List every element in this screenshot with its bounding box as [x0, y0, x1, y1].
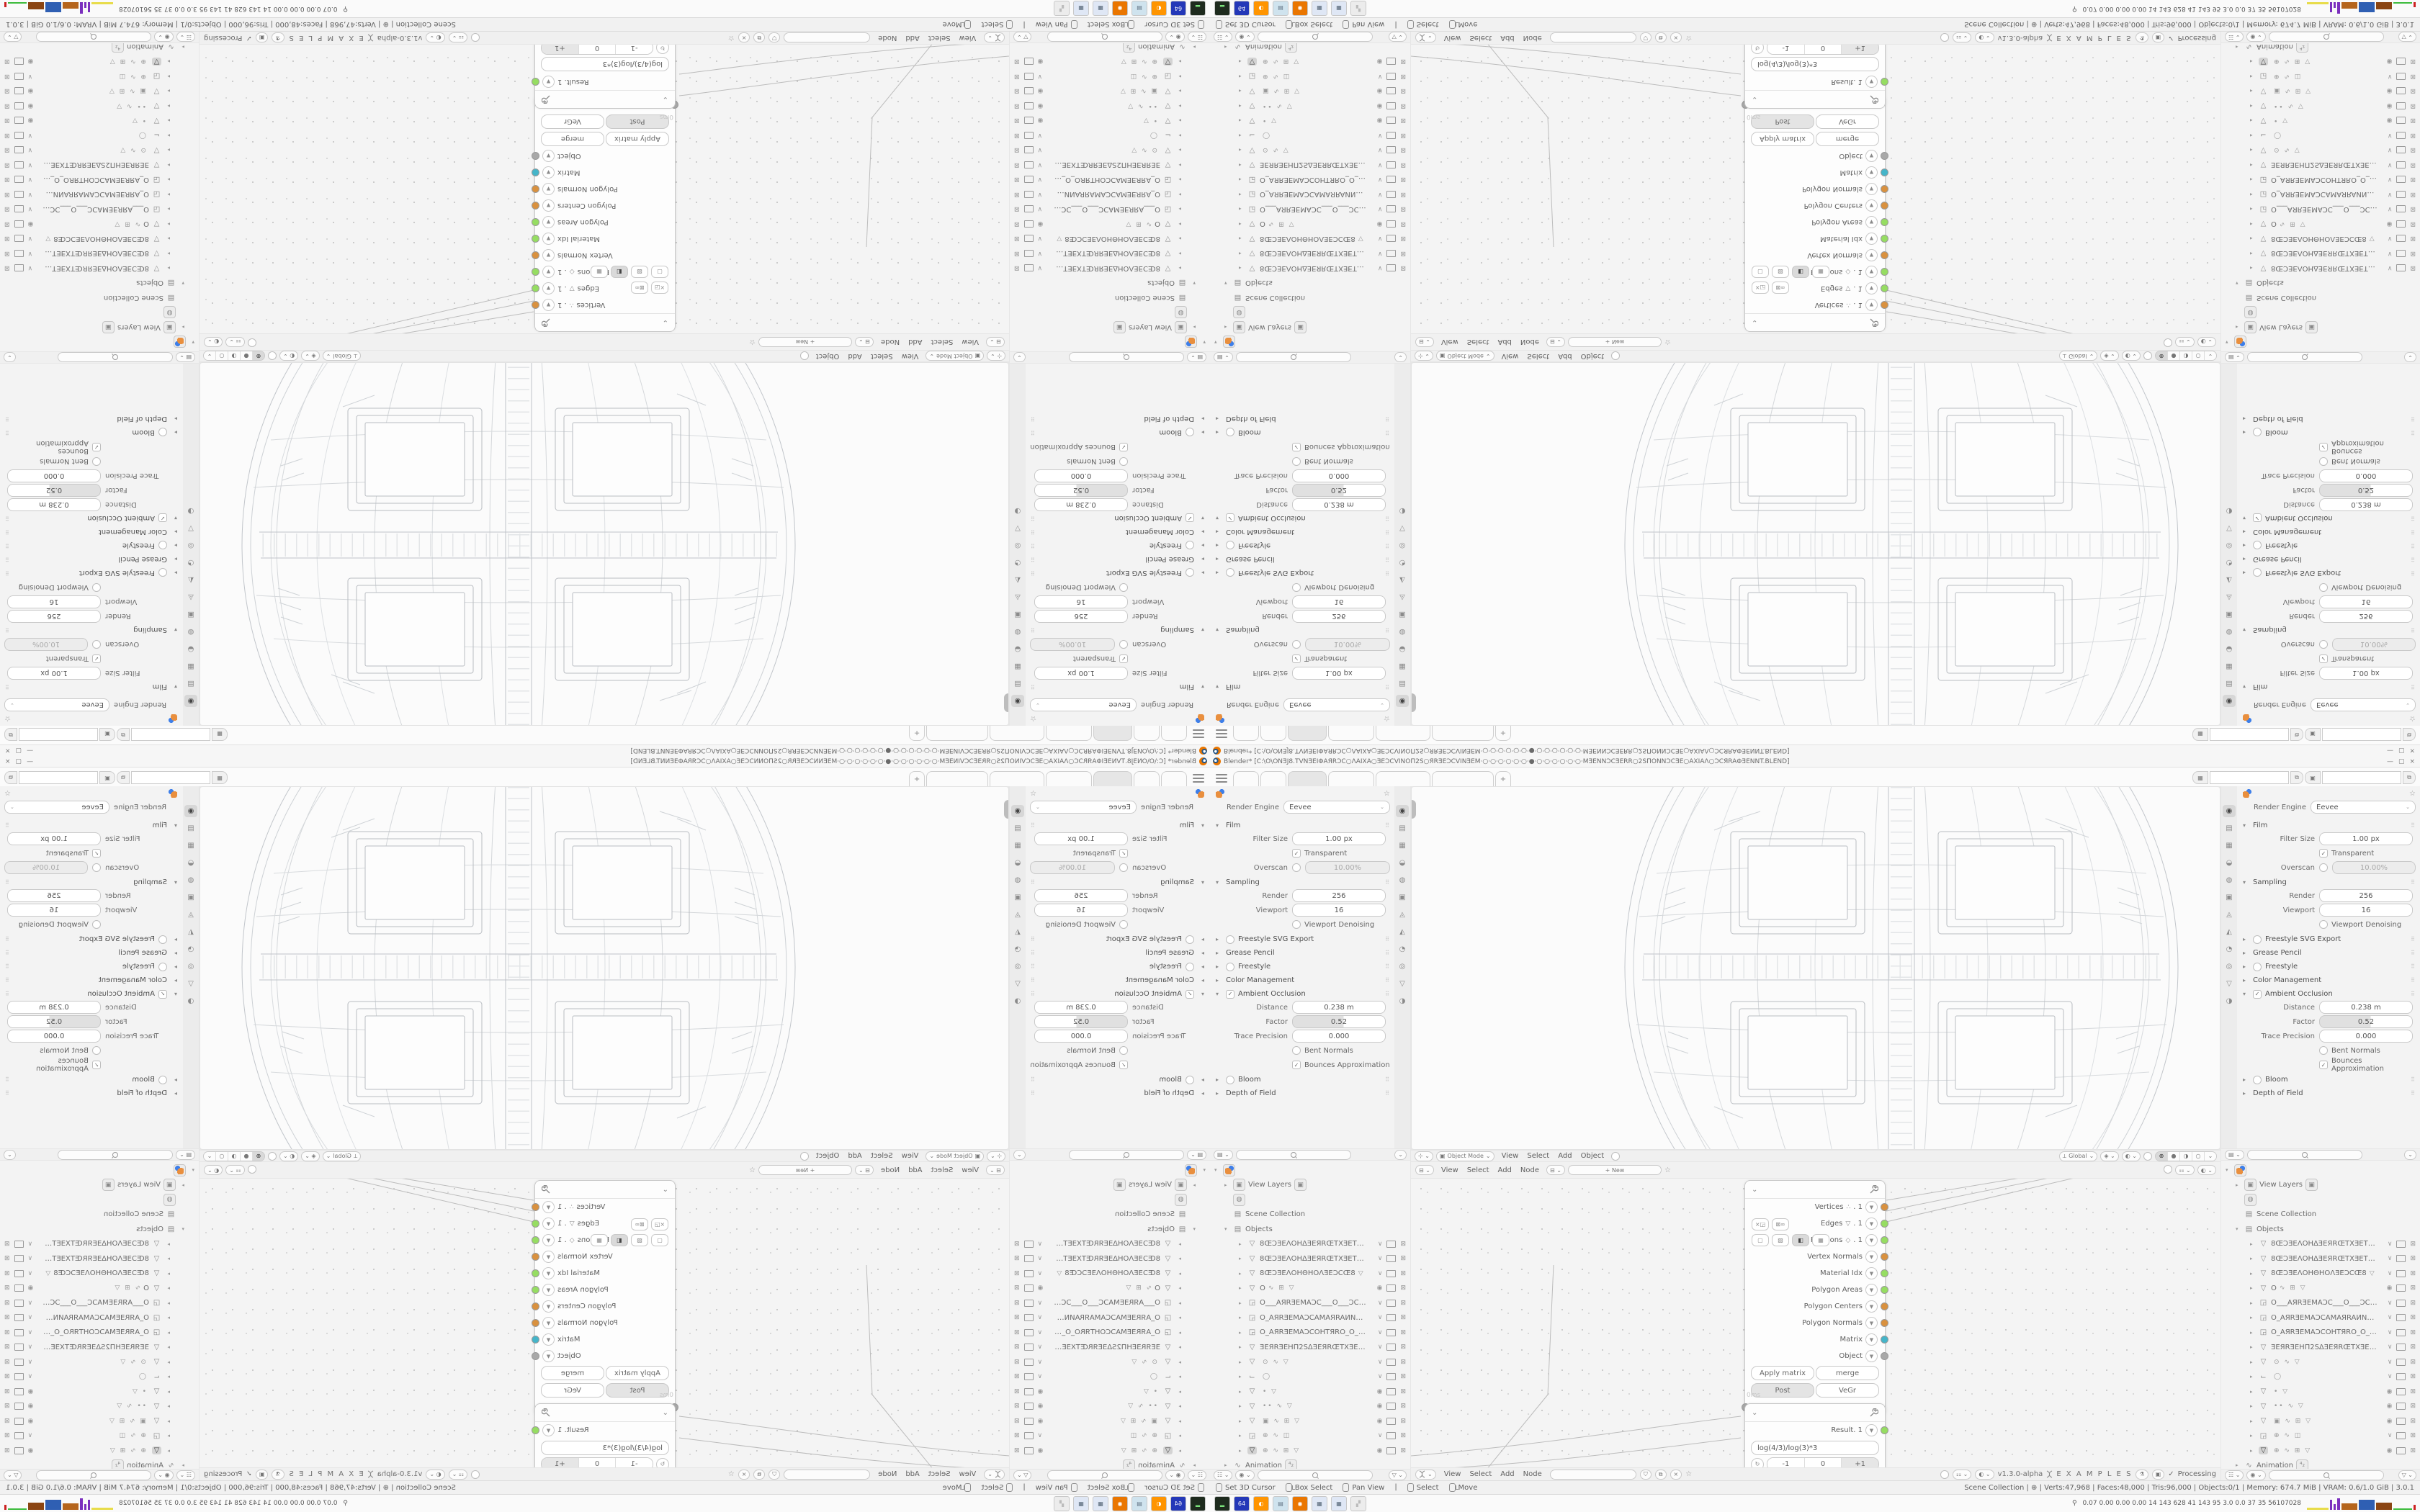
- outliner-object-row[interactable]: ▸◲O_AЯRƎEMAƆCAMAЯRAИNAΠ_O∨⊠: [1, 187, 194, 202]
- calculator-2-app-icon[interactable]: ▦: [1073, 1, 1089, 17]
- output-dropdown[interactable]: ▼: [542, 1333, 555, 1346]
- outliner-filter-icon[interactable]: ◉ ⌄: [1165, 1470, 1184, 1480]
- outliner-object-row[interactable]: ▸▽8ŒƆƎEΛOHΘHOΛƎEƆCŒ8▽∨⊠: [2226, 1266, 2419, 1282]
- checkbox[interactable]: [2319, 457, 2328, 466]
- value-field[interactable]: 1.00 px: [2319, 832, 2413, 845]
- subprogram-icon[interactable]: ⚗: [2136, 1470, 2148, 1480]
- disable-viewport-icon[interactable]: [14, 1359, 24, 1366]
- stepper-button-0[interactable]: 0: [578, 45, 616, 54]
- output-socket[interactable]: [1881, 251, 1888, 259]
- shading-dropdown[interactable]: ⌄: [204, 352, 215, 361]
- disable-viewport-icon[interactable]: [14, 220, 24, 228]
- workspace-tab-2[interactable]: [1260, 771, 1286, 786]
- viewport-menu-select[interactable]: Select: [1523, 352, 1554, 360]
- value-field[interactable]: 0.238 m: [7, 498, 101, 511]
- disable-render-icon[interactable]: ⊠: [1400, 102, 1406, 109]
- disable-viewport-icon[interactable]: [14, 1300, 24, 1307]
- outliner-object-row[interactable]: ▸▽8ŒƆƎEΛOHΔƎEЯRŒTXƎETΘTƎEXTŒ8∨⊠: [1, 246, 194, 261]
- expand-icon[interactable]: ▸: [1190, 44, 1196, 50]
- disable-render-icon[interactable]: ⊠: [4, 1329, 10, 1336]
- outliner-filter-icon[interactable]: ◉ ⌄: [1235, 32, 1254, 42]
- expand-icon[interactable]: ▸: [179, 1182, 184, 1188]
- view-layer-field[interactable]: [2322, 728, 2401, 741]
- hide-toggle-icon[interactable]: ∨: [2388, 1241, 2393, 1248]
- expand-icon[interactable]: ▸: [1216, 528, 1222, 535]
- value-field[interactable]: 10.00%: [1305, 638, 1390, 651]
- hide-toggle-icon[interactable]: ∨: [2388, 1432, 2393, 1439]
- disable-render-icon[interactable]: ⊠: [1014, 1255, 1020, 1262]
- section-header[interactable]: ▸Freestyle SVG Export⠿: [2243, 567, 2416, 579]
- disable-viewport-icon[interactable]: [2396, 1344, 2406, 1351]
- disable-render-icon[interactable]: ⊠: [2410, 132, 2416, 139]
- disable-viewport-icon[interactable]: [1386, 1403, 1396, 1410]
- outliner-object-row[interactable]: ▸▽•• ∿ ▽◉⊠: [1011, 99, 1206, 114]
- disable-viewport-icon[interactable]: [1024, 176, 1034, 183]
- outliner-row[interactable]: ▸∿Animation⁴₂: [1, 1458, 194, 1469]
- hide-toggle-icon[interactable]: ∨: [1378, 1255, 1383, 1262]
- expand-icon[interactable]: ▾: [1224, 280, 1230, 286]
- expand-icon[interactable]: ▸: [2250, 1448, 2256, 1454]
- floppy-64-app-icon[interactable]: 64: [1170, 1, 1186, 17]
- expand-icon[interactable]: ▸: [1175, 1300, 1181, 1306]
- filter-dropdown[interactable]: ▽ ⌄: [1013, 1470, 1031, 1480]
- render-properties-icon[interactable]: ◉: [2223, 695, 2236, 707]
- hide-toggle-icon[interactable]: ◉: [1038, 1403, 1044, 1410]
- viewer-icon[interactable]: ▣: [256, 1470, 269, 1480]
- mode-plain-toggle[interactable]: ▢: [1752, 1234, 1769, 1246]
- maximize-button[interactable]: ▢: [2398, 758, 2405, 765]
- outliner-search-input[interactable]: [1047, 32, 1162, 42]
- disable-viewport-icon[interactable]: [14, 1418, 24, 1425]
- disable-render-icon[interactable]: ⊠: [2410, 58, 2416, 65]
- output-properties-icon[interactable]: ▤: [184, 678, 197, 690]
- fake-user-shield-button[interactable]: ⛉: [1640, 1470, 1652, 1480]
- section-header[interactable]: ▸Color Management⠿: [1216, 974, 1390, 986]
- section-checkbox[interactable]: [158, 963, 167, 971]
- pin-icon[interactable]: ☆: [2409, 715, 2416, 723]
- hide-toggle-icon[interactable]: ∨: [28, 250, 33, 257]
- hide-toggle-icon[interactable]: ∨: [1378, 1329, 1383, 1336]
- section-checkbox[interactable]: [1226, 569, 1234, 577]
- disable-render-icon[interactable]: ⊠: [1014, 220, 1020, 228]
- render-properties-icon[interactable]: ◉: [1396, 695, 1409, 707]
- fake-user-shield-button[interactable]: ⛉: [768, 33, 780, 43]
- outliner-filter-icon[interactable]: ◉ ⌄: [2246, 1470, 2265, 1480]
- constraint-properties-icon[interactable]: ◎: [2223, 960, 2236, 973]
- disable-viewport-icon[interactable]: [1024, 87, 1034, 94]
- hide-toggle-icon[interactable]: ∨: [2388, 250, 2393, 257]
- outliner-object-row[interactable]: ▸◲O_AЯRƎEMAƆCAMAЯRAИNAΠ_O∨⊠: [2226, 187, 2419, 202]
- expand-icon[interactable]: ▸: [2243, 528, 2249, 535]
- link-toggle[interactable]: ⊠∞: [1772, 282, 1789, 294]
- hide-toggle-icon[interactable]: ◉: [1377, 1284, 1383, 1292]
- disable-viewport-icon[interactable]: [1386, 1432, 1396, 1439]
- expand-icon[interactable]: ▸: [1175, 265, 1181, 271]
- scene-icon[interactable]: ▦: [2192, 728, 2208, 741]
- expand-icon[interactable]: ▾: [2226, 1167, 2231, 1173]
- options-button[interactable]: ⌄: [1013, 1150, 1026, 1160]
- expand-icon[interactable]: ▸: [2250, 176, 2256, 182]
- section-header[interactable]: ▸Depth of Field⠿: [1216, 1087, 1390, 1099]
- section-header[interactable]: ▸Freestyle SVG Export⠿: [1030, 567, 1204, 579]
- outliner-object-row[interactable]: ▸▽O∿ ⊞ ▽◉⊠: [1011, 1281, 1206, 1296]
- section-checkbox[interactable]: [1226, 541, 1234, 550]
- value-field[interactable]: 0.52: [1034, 484, 1128, 497]
- section-header[interactable]: ▸Freestyle⠿: [1030, 539, 1204, 552]
- disable-render-icon[interactable]: ⊠: [2410, 102, 2416, 109]
- merge-button[interactable]: merge: [541, 1366, 604, 1380]
- expand-icon[interactable]: ▾: [2243, 879, 2249, 886]
- annotate-circle[interactable]: [1611, 1152, 1620, 1161]
- disable-viewport-icon[interactable]: [2396, 87, 2406, 94]
- collapse-icon[interactable]: ⌄: [1752, 96, 1757, 104]
- viewport-menu-select[interactable]: Select: [1523, 1152, 1554, 1160]
- expand-icon[interactable]: ▸: [1239, 221, 1245, 227]
- disable-render-icon[interactable]: ⊠: [4, 1284, 10, 1292]
- disable-viewport-icon[interactable]: [1024, 1314, 1034, 1321]
- disable-viewport-icon[interactable]: [2396, 264, 2406, 271]
- filter-icon[interactable]: ▤ ⌄: [1214, 1150, 1233, 1160]
- hide-toggle-icon[interactable]: ◉: [1377, 102, 1383, 109]
- hide-toggle-icon[interactable]: ◉: [28, 117, 34, 124]
- item-badge-icon[interactable]: ⁴₂: [112, 43, 124, 53]
- expand-icon[interactable]: ▸: [1239, 1315, 1245, 1320]
- options-button[interactable]: ⌄: [2404, 1150, 2416, 1160]
- expand-icon[interactable]: ▾: [1216, 879, 1222, 886]
- output-properties-icon[interactable]: ▤: [1011, 822, 1024, 834]
- workspace-tab-1[interactable]: [1233, 726, 1259, 741]
- breadcrumb[interactable]: E X A M P L E S: [288, 34, 364, 42]
- node-footer-menu-view[interactable]: View: [955, 1470, 981, 1478]
- expand-icon[interactable]: ▸: [1216, 429, 1222, 436]
- link-toggle[interactable]: ⊠∞: [631, 1218, 648, 1230]
- mode-select[interactable]: ▣Object Mode ⌄: [1436, 1151, 1494, 1161]
- disable-render-icon[interactable]: ⊠: [1400, 146, 1406, 153]
- expand-icon[interactable]: ▸: [1239, 176, 1245, 182]
- outliner-object-row[interactable]: ▸◲⊕ ∿ ◫∨⊠: [1011, 1428, 1206, 1444]
- node-menu-view[interactable]: View: [957, 1166, 983, 1174]
- section-header[interactable]: ▸Depth of Field⠿: [1030, 413, 1204, 425]
- expand-icon[interactable]: ▸: [1175, 192, 1181, 197]
- stepper-button-0[interactable]: 0: [578, 1458, 616, 1467]
- value-field[interactable]: 0.52: [7, 1015, 101, 1028]
- editor-type-icon[interactable]: ⊹ ⌄: [1415, 1151, 1433, 1161]
- value-field[interactable]: 0.000: [1292, 1030, 1386, 1043]
- disable-viewport-icon[interactable]: [14, 205, 24, 212]
- hide-toggle-icon[interactable]: ∨: [2388, 161, 2393, 168]
- outliner-row[interactable]: ◍: [1214, 305, 1409, 320]
- maximize-button[interactable]: ▢: [2398, 747, 2405, 755]
- viewport-3d[interactable]: [1411, 362, 2220, 726]
- hide-toggle-icon[interactable]: ∨: [28, 1255, 33, 1262]
- node-footer-menu-select[interactable]: Select: [924, 34, 955, 42]
- section-header[interactable]: ▾Sampling⠿: [1216, 876, 1390, 888]
- value-field[interactable]: 0.000: [2319, 1030, 2413, 1043]
- expand-icon[interactable]: ▾: [1190, 1226, 1196, 1232]
- search-input[interactable]: [58, 353, 173, 363]
- expand-icon[interactable]: ▸: [164, 176, 170, 182]
- filter-dropdown[interactable]: ▽ ⌄: [1389, 1470, 1407, 1480]
- node-tree-icon[interactable]: ⊟ ⌄: [1546, 1165, 1565, 1175]
- apply-matrix-button[interactable]: Apply matrix: [1751, 1366, 1814, 1380]
- result-node[interactable]: ⌄ Result. 1 ▼ log(4/3)/log(3)*3 ↻ -10+1: [534, 1403, 676, 1467]
- copy-button[interactable]: ⧉: [754, 1470, 766, 1480]
- shading-mode-0[interactable]: ⊕: [2156, 352, 2168, 361]
- scene-properties-icon[interactable]: ◒: [1011, 857, 1024, 869]
- expand-icon[interactable]: ▸: [2250, 1256, 2256, 1261]
- checkbox[interactable]: [2319, 583, 2328, 592]
- value-field[interactable]: 10.00%: [1030, 861, 1115, 874]
- hide-toggle-icon[interactable]: ∨: [28, 205, 33, 212]
- node-menu-select[interactable]: Select: [926, 1166, 957, 1174]
- disable-render-icon[interactable]: ⊠: [4, 58, 10, 65]
- outliner-object-row[interactable]: ▸◲O_AЯRƎEMAƆCOHTЯRO_O_OЯRTH∨⊠: [1011, 1326, 1206, 1341]
- hide-toggle-icon[interactable]: ∨: [28, 1241, 33, 1248]
- expand-icon[interactable]: ▾: [171, 879, 177, 886]
- snap-icon[interactable]: ◈ ⌄: [301, 1151, 319, 1161]
- disable-viewport-icon[interactable]: [14, 1403, 24, 1410]
- expand-icon[interactable]: ▸: [164, 1389, 170, 1395]
- disable-render-icon[interactable]: ⊠: [1014, 250, 1020, 257]
- expand-icon[interactable]: ▸: [164, 1344, 170, 1350]
- outliner-object-row[interactable]: ▸◲O___AЯRƎEMAƆC___O___ƆCAMƎI∨⊠: [1, 202, 194, 217]
- hide-toggle-icon[interactable]: ∨: [1038, 264, 1043, 271]
- expand-icon[interactable]: ▸: [2250, 58, 2256, 64]
- hide-toggle-icon[interactable]: ∨: [1378, 250, 1383, 257]
- checkbox[interactable]: [1292, 457, 1301, 466]
- output-socket[interactable]: [1881, 185, 1888, 193]
- expression-field[interactable]: log(4/3)/log(3)*3: [541, 1441, 669, 1455]
- checkbox[interactable]: [2319, 640, 2328, 649]
- outliner-row[interactable]: ◍: [1011, 305, 1206, 320]
- expand-icon[interactable]: ▸: [2250, 88, 2256, 94]
- hide-toggle-icon[interactable]: ◉: [1038, 1447, 1044, 1454]
- section-header[interactable]: ▸Freestyle SVG Export⠿: [4, 567, 177, 579]
- search-input[interactable]: [2247, 1150, 2362, 1160]
- display-mode-icon[interactable]: ☷ ⌄: [1214, 32, 1232, 42]
- disable-render-icon[interactable]: ⊠: [4, 132, 10, 139]
- outliner-object-row[interactable]: ▸▽O∿ ⊞ ▽◉⊠: [1214, 217, 1409, 232]
- workspace-tab-6[interactable]: [1432, 726, 1494, 741]
- outliner-search-input[interactable]: [2269, 32, 2384, 42]
- disable-render-icon[interactable]: ⊠: [1014, 1447, 1020, 1454]
- notes-app-icon[interactable]: ▤: [1131, 1496, 1147, 1511]
- world-properties-icon[interactable]: ◍: [2223, 626, 2236, 638]
- hide-toggle-icon[interactable]: ∨: [1038, 73, 1043, 80]
- value-field[interactable]: 1.00 px: [1034, 667, 1128, 680]
- viewport-menu-add[interactable]: Add: [843, 352, 866, 360]
- outliner-object-row[interactable]: ▸◲O___AЯRƎEMAƆC___O___ƆCAMƎI∨⊠: [1214, 202, 1409, 217]
- disable-render-icon[interactable]: ⊠: [2410, 117, 2416, 124]
- disable-viewport-icon[interactable]: [2396, 235, 2406, 242]
- disable-render-icon[interactable]: ⊠: [2410, 1403, 2416, 1410]
- expand-icon[interactable]: ▾: [1216, 991, 1222, 997]
- outliner-row[interactable]: ▤Scene Collection: [2226, 290, 2419, 305]
- expand-icon[interactable]: ▸: [171, 950, 177, 956]
- section-checkbox[interactable]: ✓: [1186, 990, 1194, 999]
- pin-icon[interactable]: ☆: [1685, 1470, 1692, 1478]
- vegr-button[interactable]: VeGr: [1816, 114, 1879, 129]
- scene-icon[interactable]: ▦: [212, 728, 228, 741]
- subprogram-icon[interactable]: ⚗: [2136, 33, 2148, 43]
- disable-viewport-icon[interactable]: [2396, 1359, 2406, 1366]
- outliner-object-row[interactable]: ▸▽▣ ∿ ⊞ ▽◉⊠: [1011, 1414, 1206, 1429]
- output-dropdown[interactable]: ▼: [542, 233, 555, 245]
- overlays-icon[interactable]: ◐ ⌄: [1975, 33, 1994, 43]
- disable-viewport-icon[interactable]: [1386, 1255, 1396, 1262]
- expand-icon[interactable]: ▸: [164, 251, 170, 256]
- expand-icon[interactable]: ▸: [164, 88, 170, 94]
- expand-icon[interactable]: ▾: [189, 339, 194, 345]
- stepper-button--1[interactable]: -1: [615, 45, 653, 54]
- expand-icon[interactable]: ▾: [179, 1226, 184, 1232]
- stepper-button--1[interactable]: -1: [615, 1458, 653, 1467]
- disable-render-icon[interactable]: ⊠: [1400, 1241, 1406, 1248]
- dna-icon[interactable]: ⌄: [984, 33, 1005, 43]
- expand-icon[interactable]: ▸: [1175, 1271, 1181, 1277]
- disable-render-icon[interactable]: ⊠: [1400, 264, 1406, 271]
- node-menu-node[interactable]: Node: [877, 1166, 904, 1174]
- section-checkbox[interactable]: ✓: [2253, 514, 2262, 523]
- editor-type-icon[interactable]: ⊹ ⌄: [1415, 351, 1433, 361]
- outliner-row[interactable]: ▸∿Animation⁴₂: [1011, 1458, 1206, 1469]
- expand-icon[interactable]: ▸: [171, 429, 177, 436]
- options-button[interactable]: ⌄: [2404, 353, 2416, 363]
- render-properties-icon[interactable]: ◉: [184, 695, 197, 707]
- disable-viewport-icon[interactable]: [1386, 117, 1396, 124]
- hide-toggle-icon[interactable]: ∨: [1038, 132, 1043, 139]
- search-input[interactable]: [1236, 1150, 1351, 1160]
- scene-properties-icon[interactable]: ◒: [1011, 643, 1024, 655]
- output-dropdown[interactable]: ▼: [1865, 1333, 1878, 1346]
- outliner-object-row[interactable]: ▸▽8ŒƆƎEΛOHΔƎEЯRŒTXƎETOTƎEXTŒ8∨⊠: [2226, 1237, 2419, 1252]
- scene-properties-icon[interactable]: ◒: [1396, 857, 1409, 869]
- section-checkbox[interactable]: [1226, 935, 1234, 944]
- hide-toggle-icon[interactable]: ∨: [28, 235, 33, 242]
- output-socket[interactable]: [532, 1352, 539, 1360]
- expand-icon[interactable]: ▸: [1175, 235, 1181, 241]
- node-tree-name-field[interactable]: [1550, 1470, 1636, 1480]
- hide-toggle-icon[interactable]: ◉: [2387, 1403, 2393, 1410]
- viewport-menu-object[interactable]: Object: [812, 352, 844, 360]
- expand-icon[interactable]: ▸: [164, 206, 170, 212]
- expand-icon[interactable]: ▾: [1198, 626, 1204, 633]
- disable-viewport-icon[interactable]: [1386, 73, 1396, 80]
- output-socket[interactable]: [532, 1203, 539, 1211]
- section-header[interactable]: ▸Bloom⠿: [2243, 1074, 2416, 1086]
- checkbox[interactable]: [2319, 920, 2328, 929]
- disable-viewport-icon[interactable]: [14, 102, 24, 109]
- checkbox[interactable]: [1119, 457, 1128, 466]
- node-menu-node[interactable]: Node: [1516, 1166, 1543, 1174]
- mode-wire-toggle[interactable]: ▧: [1772, 266, 1789, 278]
- outliner-object-row[interactable]: ▸◲O___AЯRƎEMAƆC___O___ƆCAMƎI∨⊠: [1011, 202, 1206, 217]
- expand-icon[interactable]: ▸: [164, 1448, 170, 1454]
- outliner-object-row[interactable]: ▸◲O_AЯRƎEMAƆCAMAЯRAИNAΠ_O∨⊠: [1011, 187, 1206, 202]
- outliner-object-row[interactable]: ▸◲O_AЯRƎEMAƆCOHTЯRO_O_OЯRTH∨⊠: [1214, 1326, 1409, 1341]
- render-properties-icon[interactable]: ◉: [184, 805, 197, 817]
- workspace-tab-1[interactable]: [1233, 771, 1259, 786]
- expand-icon[interactable]: ▸: [164, 103, 170, 109]
- hide-toggle-icon[interactable]: ◉: [2387, 1388, 2393, 1395]
- shading-mode-2[interactable]: ◑: [228, 1152, 240, 1161]
- outliner-object-row[interactable]: ▸▽⊙ ∿ ▽∨⊠: [1214, 143, 1409, 158]
- display-mode-icon[interactable]: ☷ ⌄: [2225, 1470, 2244, 1480]
- copy-scene-button[interactable]: ⧉: [117, 771, 130, 784]
- disable-render-icon[interactable]: ⊠: [4, 1359, 10, 1366]
- apply-matrix-button[interactable]: Apply matrix: [1751, 132, 1814, 146]
- viewport-menu-add[interactable]: Add: [1554, 1152, 1576, 1160]
- outliner-row[interactable]: ◍: [1214, 1192, 1409, 1207]
- outliner-object-row[interactable]: ▸▽• ▽◉⊠: [1011, 1385, 1206, 1400]
- hide-toggle-icon[interactable]: ◉: [28, 102, 34, 109]
- disable-render-icon[interactable]: ⊠: [1014, 1359, 1020, 1366]
- disable-render-icon[interactable]: ⊠: [4, 117, 10, 124]
- copy-button[interactable]: ⧉: [1655, 1470, 1667, 1480]
- outliner-row[interactable]: ▸▣View Layers▣: [1011, 320, 1206, 335]
- output-dropdown[interactable]: ▼: [1865, 1251, 1878, 1263]
- disable-render-icon[interactable]: ⊠: [1014, 264, 1020, 271]
- expand-icon[interactable]: ▾: [179, 280, 184, 286]
- outliner-object-row[interactable]: ▸▽⊙ ∿ ▽∨⊠: [1011, 143, 1206, 158]
- disable-render-icon[interactable]: ⊠: [1400, 205, 1406, 212]
- output-dropdown[interactable]: ▼: [542, 1284, 555, 1296]
- outliner-row[interactable]: ▸∿Animation⁴₂: [1, 43, 194, 54]
- hide-toggle-icon[interactable]: ∨: [28, 73, 33, 80]
- checkbox[interactable]: ✓: [1292, 1061, 1301, 1069]
- expand-icon[interactable]: ▸: [164, 265, 170, 271]
- item-badge-icon[interactable]: ▣: [2305, 321, 2318, 333]
- expand-icon[interactable]: ▸: [1216, 542, 1222, 549]
- section-checkbox[interactable]: ✓: [1226, 514, 1234, 523]
- proportional-edit-icon[interactable]: ◐ ⌄: [279, 351, 298, 361]
- disable-viewport-icon[interactable]: [1386, 1284, 1396, 1292]
- node-menu-view[interactable]: View: [1437, 338, 1463, 346]
- expand-icon[interactable]: ▾: [1216, 822, 1222, 829]
- snap-icon[interactable]: ◈ ⌄: [301, 351, 319, 361]
- shading-mode-1[interactable]: ●: [2168, 352, 2180, 361]
- outliner-row[interactable]: ◍: [2226, 1192, 2419, 1207]
- expand-icon[interactable]: ▸: [1175, 1241, 1181, 1247]
- outliner-object-row[interactable]: ▸▽8ŒƆƎEΛOHΔƎEЯRŒTXƎETOTƎEXTŒ8∨⊠: [1, 1237, 194, 1252]
- unlink-button[interactable]: ×: [738, 33, 750, 43]
- section-header[interactable]: ▸Bloom⠿: [1030, 426, 1204, 438]
- render-engine-select[interactable]: Eevee⌄: [1283, 801, 1390, 814]
- hide-toggle-icon[interactable]: ∨: [28, 191, 33, 198]
- output-socket[interactable]: [1881, 1336, 1888, 1344]
- hide-toggle-icon[interactable]: ∨: [1378, 1432, 1383, 1439]
- disable-viewport-icon[interactable]: [1386, 1270, 1396, 1277]
- disable-viewport-icon[interactable]: [2396, 132, 2406, 139]
- data-properties-icon[interactable]: ▽: [1011, 978, 1024, 990]
- viewer-icon[interactable]: ▣: [256, 33, 269, 43]
- output-socket[interactable]: [532, 1220, 539, 1228]
- outliner-object-row[interactable]: ▸▽•• ∿ ▽◉⊠: [2226, 1399, 2419, 1414]
- expand-icon[interactable]: ▸: [1175, 1330, 1181, 1336]
- pin-icon[interactable]: ☆: [1030, 790, 1036, 798]
- modifier-properties-icon[interactable]: ◬: [1011, 591, 1024, 603]
- toolbar-handle[interactable]: [1004, 693, 1009, 712]
- expand-icon[interactable]: ▸: [164, 1241, 170, 1247]
- hide-toggle-icon[interactable]: ∨: [2388, 205, 2393, 212]
- expand-icon[interactable]: ▸: [1239, 58, 1245, 64]
- pin-icon[interactable]: ☆: [1384, 715, 1390, 723]
- hide-toggle-icon[interactable]: ∨: [2388, 1314, 2393, 1321]
- workspace-tab-6[interactable]: [926, 726, 988, 741]
- value-field[interactable]: 10.00%: [1305, 861, 1390, 874]
- section-checkbox[interactable]: [158, 541, 167, 550]
- expand-icon[interactable]: ▸: [1224, 44, 1230, 50]
